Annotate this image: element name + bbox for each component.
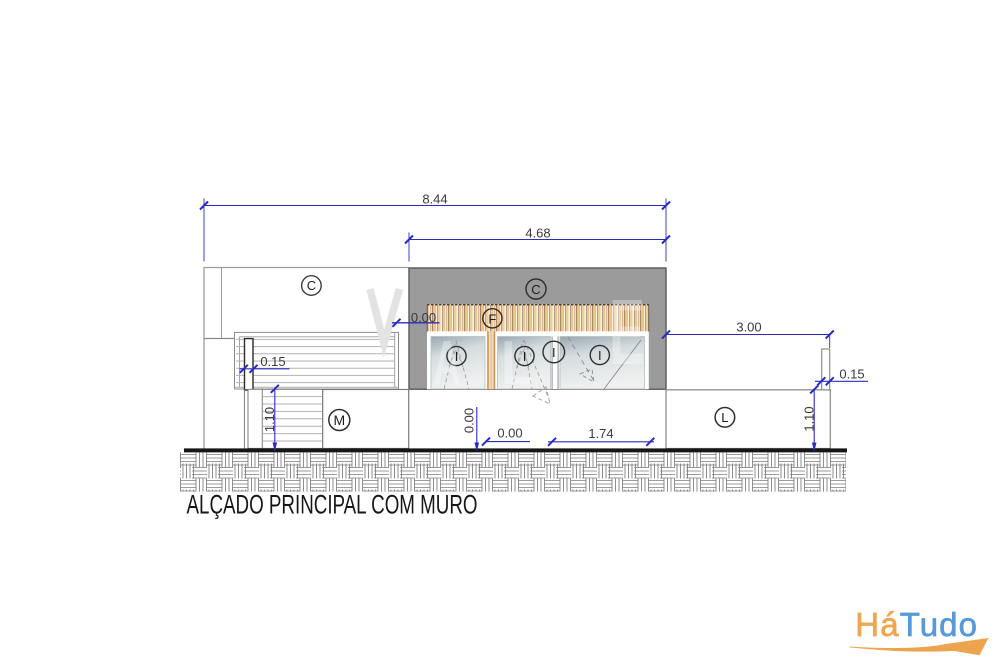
svg-text:0.00: 0.00 [497,426,522,441]
svg-text:A: A [433,328,461,398]
svg-text:1.74: 1.74 [588,426,613,441]
svg-text:0.15: 0.15 [260,354,285,369]
svg-text:C: C [531,282,540,297]
svg-text:F: F [488,311,496,326]
svg-text:I: I [552,345,556,360]
svg-text:1.10: 1.10 [262,407,277,432]
svg-text:ALÇADO PRINCIPAL COM MURO: ALÇADO PRINCIPAL COM MURO [187,490,478,520]
svg-text:4.68: 4.68 [525,226,550,241]
svg-text:0.00: 0.00 [411,310,436,325]
svg-text:0.15: 0.15 [839,366,864,381]
svg-text:E: E [609,281,645,385]
svg-text:I: I [598,348,602,363]
svg-text:HáTudo: HáTudo [855,606,978,643]
svg-text:L: L [721,410,728,425]
svg-text:8.44: 8.44 [422,192,447,207]
svg-text:1.10: 1.10 [801,406,816,431]
svg-text:0.00: 0.00 [461,408,476,433]
svg-text:L: L [501,329,533,398]
svg-text:C: C [307,278,316,293]
svg-text:3.00: 3.00 [736,320,761,335]
svg-text:M: M [333,412,345,428]
